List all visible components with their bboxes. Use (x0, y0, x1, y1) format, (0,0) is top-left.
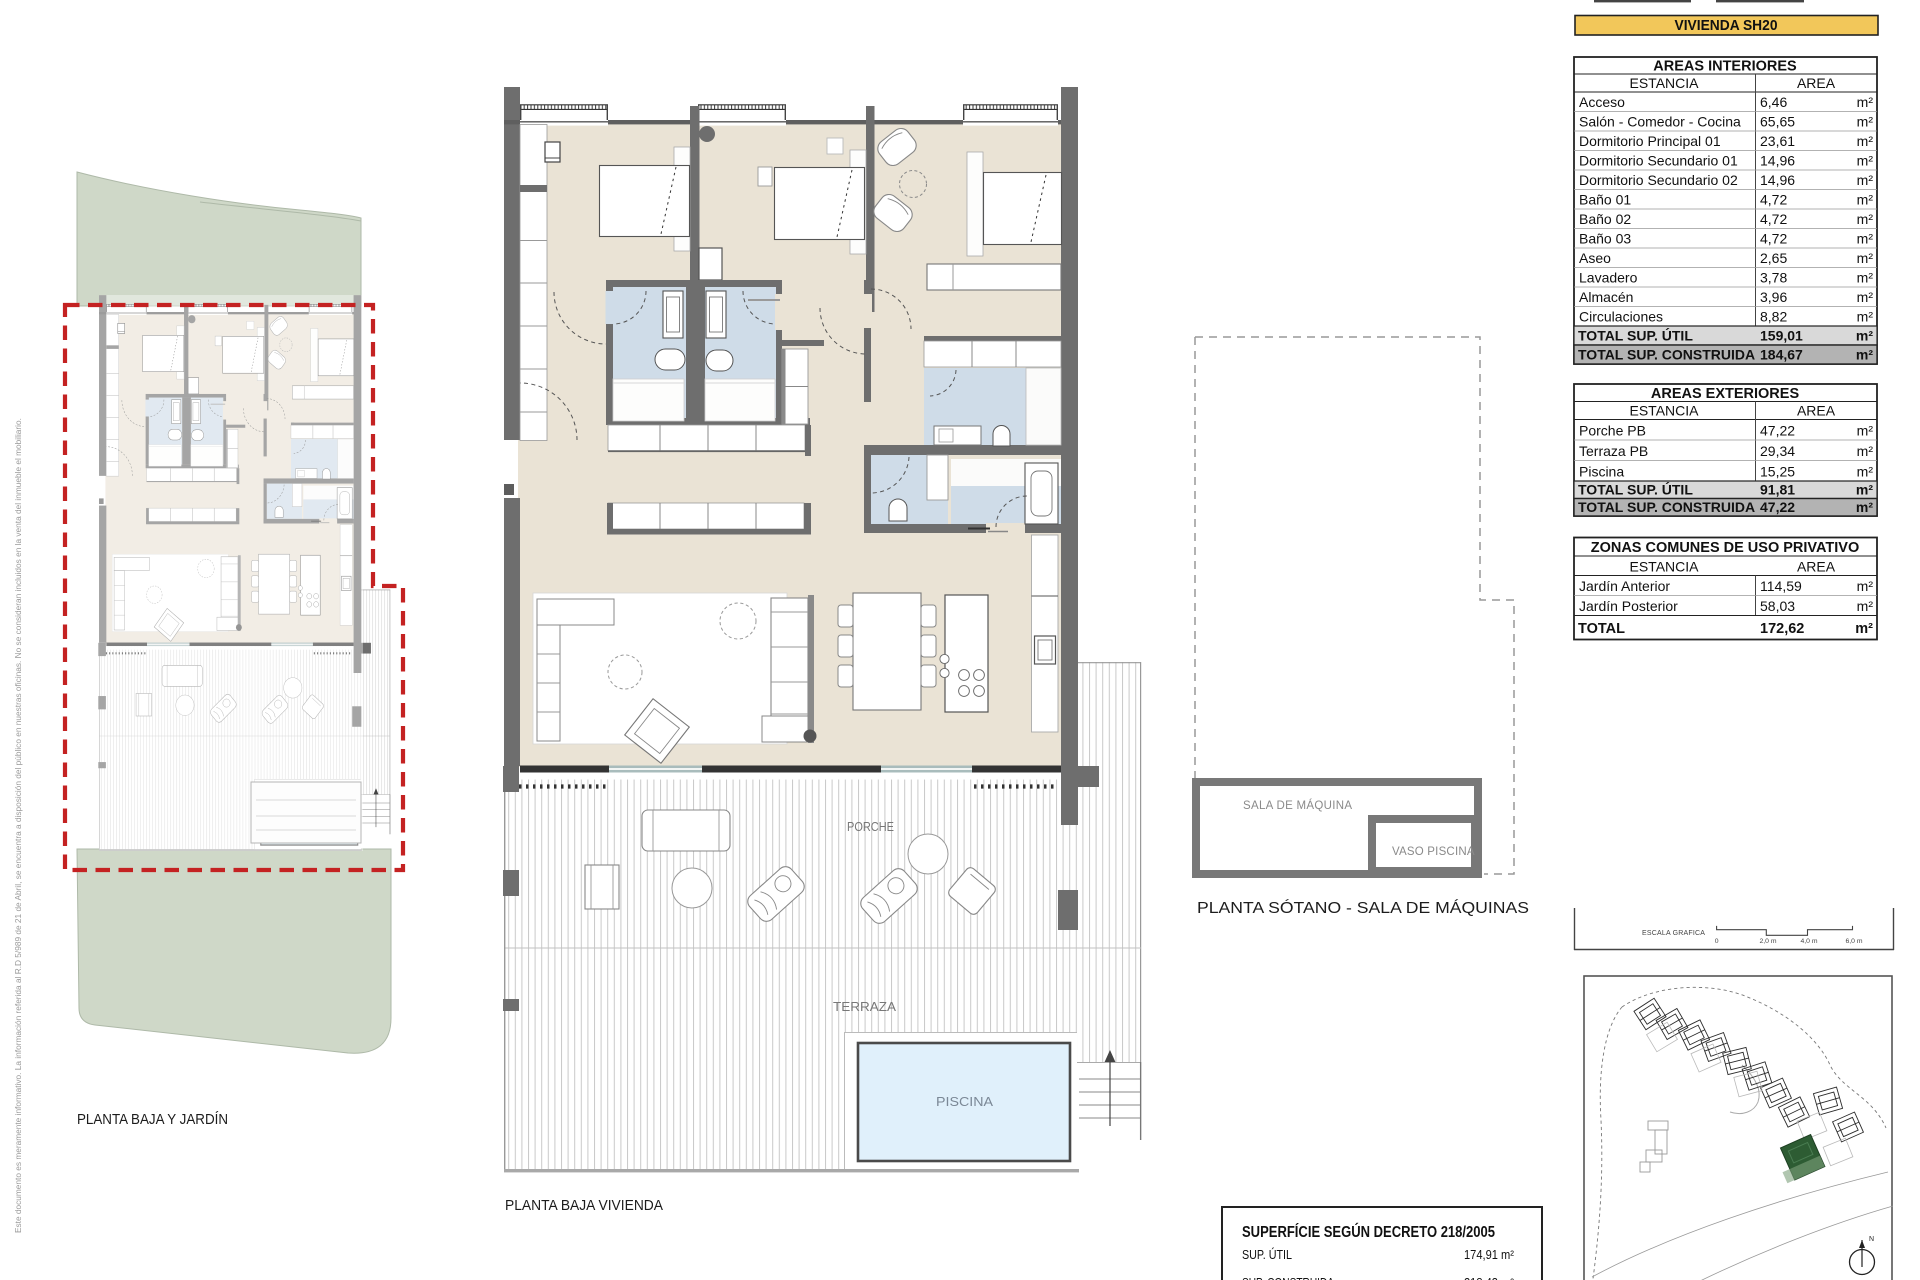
svg-text:Dormitorio Secundario 02: Dormitorio Secundario 02 (1579, 172, 1738, 188)
svg-text:2,0 m: 2,0 m (1760, 938, 1777, 945)
svg-text:PISCINA: PISCINA (936, 1094, 993, 1109)
svg-text:218,43 m²: 218,43 m² (1464, 1276, 1514, 1280)
svg-text:ZONAS COMUNES DE USO PRIVATIVO: ZONAS COMUNES DE USO PRIVATIVO (1591, 540, 1860, 556)
svg-text:2,65: 2,65 (1760, 250, 1787, 266)
svg-text:Porche PB: Porche PB (1579, 423, 1646, 439)
svg-text:m²: m² (1857, 172, 1874, 188)
svg-text:AREAS EXTERIORES: AREAS EXTERIORES (1651, 386, 1800, 402)
svg-text:Aseo: Aseo (1579, 250, 1611, 266)
svg-text:m²: m² (1857, 211, 1874, 227)
svg-text:m²: m² (1857, 464, 1874, 480)
svg-text:114,59: 114,59 (1760, 578, 1802, 594)
svg-text:m²: m² (1857, 443, 1874, 459)
svg-text:Baño 01: Baño 01 (1579, 192, 1631, 208)
svg-text:m²: m² (1857, 250, 1874, 266)
svg-text:AREA: AREA (1797, 75, 1836, 91)
svg-text:Dormitorio Principal 01: Dormitorio Principal 01 (1579, 133, 1721, 149)
svg-text:VIVIENDA SH20: VIVIENDA SH20 (1675, 17, 1778, 34)
svg-text:174,91 m²: 174,91 m² (1464, 1248, 1514, 1262)
svg-text:47,22: 47,22 (1760, 423, 1795, 439)
svg-text:m²: m² (1857, 578, 1874, 594)
svg-text:TOTAL SUP. ÚTIL: TOTAL SUP. ÚTIL (1578, 327, 1693, 344)
svg-text:Dormitorio Secundario 01: Dormitorio Secundario 01 (1579, 153, 1738, 169)
svg-text:29,34: 29,34 (1760, 443, 1795, 459)
svg-text:Jardín Posterior: Jardín Posterior (1579, 598, 1678, 614)
svg-text:58,03: 58,03 (1760, 598, 1795, 614)
svg-text:m²: m² (1857, 153, 1874, 169)
svg-text:Terraza PB: Terraza PB (1579, 443, 1648, 459)
svg-text:VASO PISCINA: VASO PISCINA (1392, 846, 1475, 858)
svg-text:m²: m² (1857, 94, 1874, 110)
svg-text:4,72: 4,72 (1760, 211, 1787, 227)
svg-text:SALA DE MÁQUINA: SALA DE MÁQUINA (1243, 799, 1352, 812)
svg-text:3,78: 3,78 (1760, 270, 1787, 286)
svg-text:Acceso: Acceso (1579, 94, 1625, 110)
svg-text:4,72: 4,72 (1760, 231, 1787, 247)
svg-text:TERRAZA: TERRAZA (833, 999, 896, 1014)
svg-text:Lavadero: Lavadero (1579, 270, 1638, 286)
svg-text:0: 0 (1715, 938, 1719, 945)
svg-text:TOTAL SUP. CONSTRUIDA: TOTAL SUP. CONSTRUIDA (1578, 499, 1755, 515)
svg-text:SUPERFÍCIE SEGÚN DECRETO 218/2: SUPERFÍCIE SEGÚN DECRETO 218/2005 (1242, 1223, 1495, 1241)
svg-text:Piscina: Piscina (1579, 464, 1624, 480)
svg-text:m²: m² (1857, 192, 1874, 208)
svg-text:4,72: 4,72 (1760, 192, 1787, 208)
svg-text:SUP. CONSTRUIDA: SUP. CONSTRUIDA (1242, 1276, 1335, 1280)
svg-text:PORCHE: PORCHE (847, 820, 894, 834)
svg-text:m²: m² (1857, 423, 1874, 439)
svg-text:m²: m² (1857, 133, 1874, 149)
svg-text:PLANTA BAJA Y JARDÍN: PLANTA BAJA Y JARDÍN (77, 1111, 228, 1128)
svg-text:8,82: 8,82 (1760, 309, 1787, 325)
svg-text:m²: m² (1856, 482, 1873, 498)
svg-text:15,25: 15,25 (1760, 464, 1795, 480)
svg-text:ESTANCIA: ESTANCIA (1630, 75, 1700, 91)
svg-text:184,67: 184,67 (1760, 347, 1803, 363)
svg-text:SUP. ÚTIL: SUP. ÚTIL (1242, 1247, 1292, 1262)
svg-text:65,65: 65,65 (1760, 114, 1795, 130)
svg-text:m²: m² (1857, 114, 1874, 130)
svg-text:N: N (1869, 1236, 1874, 1243)
svg-text:159,01: 159,01 (1760, 328, 1803, 344)
svg-text:m²: m² (1856, 499, 1873, 515)
svg-text:m²: m² (1857, 270, 1874, 286)
svg-text:ESTANCIA: ESTANCIA (1630, 559, 1700, 575)
svg-text:172,62: 172,62 (1760, 621, 1804, 637)
svg-text:Este documento es meramente in: Este documento es meramente informativo.… (13, 418, 23, 1233)
svg-text:m²: m² (1857, 231, 1874, 247)
svg-text:Circulaciones: Circulaciones (1579, 309, 1663, 325)
svg-text:m²: m² (1856, 328, 1873, 344)
svg-text:4,0 m: 4,0 m (1801, 938, 1818, 945)
svg-text:PLANTA SÓTANO - SALA DE MÁQUIN: PLANTA SÓTANO - SALA DE MÁQUINAS (1197, 900, 1529, 917)
svg-text:ESTANCIA: ESTANCIA (1630, 403, 1700, 419)
svg-text:m²: m² (1857, 309, 1874, 325)
svg-text:47,22: 47,22 (1760, 499, 1795, 515)
svg-text:Almacén: Almacén (1579, 289, 1633, 305)
svg-text:Baño 02: Baño 02 (1579, 211, 1631, 227)
svg-text:Salón - Comedor - Cocina: Salón - Comedor - Cocina (1579, 114, 1741, 130)
svg-text:AREA: AREA (1797, 403, 1836, 419)
svg-text:m²: m² (1857, 289, 1874, 305)
svg-text:AREA: AREA (1797, 559, 1836, 575)
svg-text:ESCALA GRAFICA: ESCALA GRAFICA (1642, 930, 1705, 937)
svg-text:Baño 03: Baño 03 (1579, 231, 1631, 247)
svg-text:TOTAL SUP. ÚTIL: TOTAL SUP. ÚTIL (1578, 481, 1693, 498)
svg-text:m²: m² (1857, 598, 1874, 614)
svg-text:23,61: 23,61 (1760, 133, 1795, 149)
svg-text:14,96: 14,96 (1760, 153, 1795, 169)
svg-text:m²: m² (1856, 347, 1873, 363)
svg-text:TOTAL SUP. CONSTRUIDA: TOTAL SUP. CONSTRUIDA (1578, 347, 1755, 363)
svg-text:6,46: 6,46 (1760, 94, 1787, 110)
svg-text:3,96: 3,96 (1760, 289, 1787, 305)
svg-text:TOTAL: TOTAL (1578, 621, 1625, 637)
svg-text:PLANTA BAJA VIVIENDA: PLANTA BAJA VIVIENDA (505, 1197, 663, 1214)
svg-text:6,0 m: 6,0 m (1846, 938, 1863, 945)
svg-text:m²: m² (1855, 621, 1873, 637)
svg-text:14,96: 14,96 (1760, 172, 1795, 188)
svg-text:AREAS INTERIORES: AREAS INTERIORES (1653, 59, 1797, 75)
svg-text:91,81: 91,81 (1760, 482, 1795, 498)
svg-text:Jardín Anterior: Jardín Anterior (1579, 578, 1670, 594)
